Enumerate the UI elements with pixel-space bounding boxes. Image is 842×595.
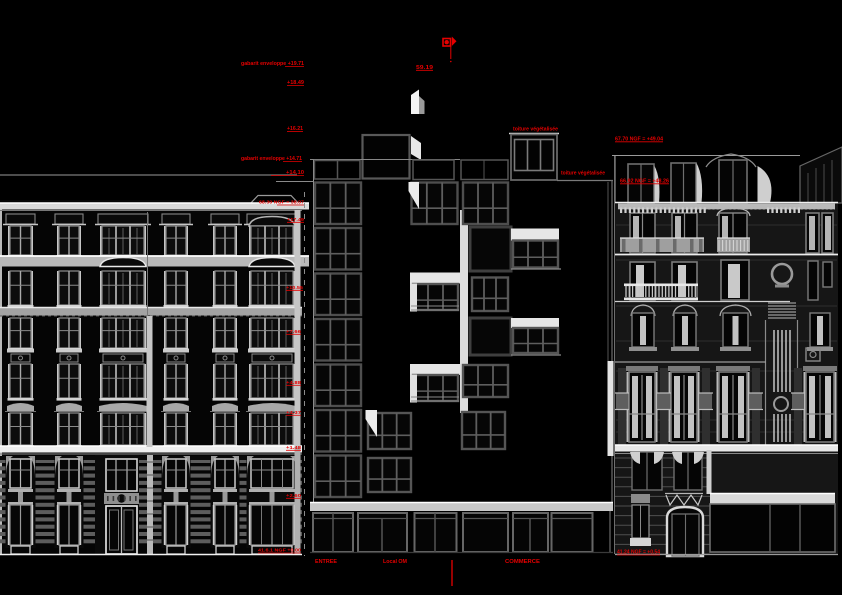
svg-text:toiture végétalisée: toiture végétalisée (561, 171, 605, 177)
svg-text:Local OM: Local OM (383, 559, 407, 565)
svg-text:+2.60: +2.60 (286, 493, 302, 498)
svg-text:toiture végétalisée: toiture végétalisée (513, 127, 558, 133)
svg-text:+1.48: +1.48 (286, 445, 302, 450)
svg-text:ENTREE: ENTREE (315, 559, 338, 565)
svg-text:+7.66: +7.66 (286, 329, 302, 334)
svg-text:COMMERCE: COMMERCE (505, 559, 541, 565)
svg-text:+4.88: +4.88 (286, 380, 302, 385)
svg-text:+10.55: +10.55 (286, 285, 304, 290)
svg-text:68.30 NGF = 38.07: 68.30 NGF = 38.07 (259, 200, 305, 205)
svg-text:+4.37: +4.37 (286, 410, 302, 415)
svg-text:41.6.1 NGF +0.00: 41.6.1 NGF +0.00 (258, 548, 302, 553)
svg-text:+17.49: +17.49 (287, 217, 305, 222)
